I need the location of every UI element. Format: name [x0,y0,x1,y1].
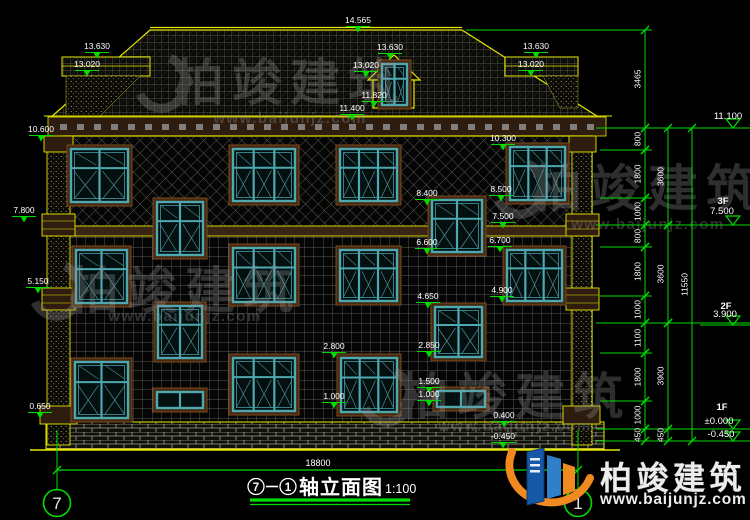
dimension-value: 1800 [633,367,643,386]
dimension-value: 3600 [656,167,666,186]
window-frame [341,358,397,412]
page-title: 轴立面图 [299,475,383,499]
window [336,246,401,305]
level-value: 7.500 [710,206,734,217]
elevation-label: 1.000 [418,389,440,399]
pilaster-ledge [42,214,75,236]
dentil [553,124,560,130]
pilaster-capital [569,136,596,152]
dimension-value: 800 [633,229,643,243]
dentil [451,124,458,130]
window [67,145,132,206]
pilaster-ledge [566,288,599,310]
elevation-label: 0.400 [493,410,515,420]
dentil [162,124,169,130]
dentil [570,124,577,130]
window [428,196,486,256]
level-value: ±0.000 [705,416,734,427]
dentil [383,124,390,130]
dimension-value: 1800 [633,164,643,183]
dimension-value: 3900 [656,366,666,385]
elevation-label: 10.600 [28,124,54,134]
logo-url-text: www.baijunjz.com [599,491,747,508]
window [153,198,207,259]
dentil [145,124,152,130]
title-axis-from: 7 [253,482,259,494]
dimension-value: 11550 [680,273,690,296]
window [229,145,299,205]
elevation-label: 8.500 [490,184,512,194]
dimension-value: 1100 [633,329,643,348]
dentil [60,124,67,130]
elevation-label: 5.150 [27,276,49,286]
window-frame [233,149,295,201]
elevation-mark-triangle [38,136,45,142]
dentil [502,124,509,130]
dentil [400,124,407,130]
dimension-value: 450 [656,428,666,442]
dentil [77,124,84,130]
elevation-label: 7.800 [13,205,35,215]
elevation-label: 1.500 [418,376,440,386]
elevation-label: 4.900 [491,285,513,295]
elevation-label: -0.450 [491,431,515,441]
elevation-label: 2.850 [418,340,440,350]
dentil [366,124,373,130]
window-frame [340,250,397,301]
overall-width-dimension: 18800 [305,458,330,468]
dimension-value: 1000 [633,202,643,221]
window-frame [233,358,295,411]
watermark-url-text: www.baijunjz.com [107,308,261,325]
logo-window-mark [530,464,540,467]
window-frame [340,149,397,201]
dentil [111,124,118,130]
floor-band [62,226,592,236]
elevation-label: 13.020 [353,60,379,70]
elevation-label: 13.630 [84,41,110,51]
logo-building-icon [563,463,575,495]
floor-label: 1F [716,402,727,413]
dentil [179,124,186,130]
level-value: 3.900 [713,309,737,320]
dimension-value: 3600 [656,264,666,283]
elevation-mark-triangle [21,217,28,223]
elevation-label: 8.400 [416,188,438,198]
window [71,358,132,422]
window [431,303,486,361]
title-axis-to: 1 [285,482,292,494]
elevation-label: 7.500 [492,211,514,221]
dentil [468,124,475,130]
dimension-value: 1800 [633,262,643,281]
elevation-label: 13.630 [377,42,403,52]
logo-building-icon [547,455,561,499]
elevation-label: 0.650 [29,401,51,411]
elevation-label: 1.000 [323,391,345,401]
cad-canvas: 柏竣建筑www.baijunjz.com柏竣建筑www.baijunjz.com… [0,0,750,520]
elevation-label: 13.020 [518,59,544,69]
level-flag-triangle [726,216,740,225]
elevation-label: 6.600 [416,237,438,247]
title-block: 7 1 轴立面图 1:100 [248,475,416,505]
dentil [536,124,543,130]
logo-window-mark [530,470,540,473]
dentil [434,124,441,130]
elevation-label: 4.650 [417,291,439,301]
level-value: -0.450 [708,429,735,440]
elevation-label: 11.400 [339,103,365,113]
dentil [128,124,135,130]
window [336,145,401,205]
dimension-value: 1000 [633,405,643,424]
watermark: 柏竣建筑www.baijunjz.com [35,263,301,325]
elevation-label: 11.820 [361,90,387,100]
dimension-value: 450 [633,428,643,442]
elevation-label: 13.020 [74,59,100,69]
elevation-label: 13.630 [523,41,549,51]
window-frame [507,250,562,301]
dentil [485,124,492,130]
elevation-label: 14.565 [345,15,371,25]
axis-bubble-left-label: 7 [52,494,61,513]
logo-building-icon [527,448,544,505]
window [153,388,207,412]
dimension-value: 3465 [633,69,643,88]
dentil [94,124,101,130]
elevation-drawing: 柏竣建筑www.baijunjz.com柏竣建筑www.baijunjz.com… [0,0,750,520]
elevation-label: 10.300 [490,133,516,143]
window [229,354,299,415]
dimension-value: 1000 [633,300,643,319]
logo-window-mark [530,458,540,461]
dentil [519,124,526,130]
level-value: 11.100 [714,111,742,122]
dimension-value: 800 [633,132,643,146]
dentil [417,124,424,130]
dentil [196,124,203,130]
elevation-label: 2.800 [323,341,345,351]
brand-logo: 柏竣建筑 www.baijunjz.com [509,448,746,508]
drawing-scale: 1:100 [385,482,416,496]
elevation-mark-triangle [35,288,42,294]
dentil [587,124,594,130]
elevation-label: 6.700 [489,235,511,245]
